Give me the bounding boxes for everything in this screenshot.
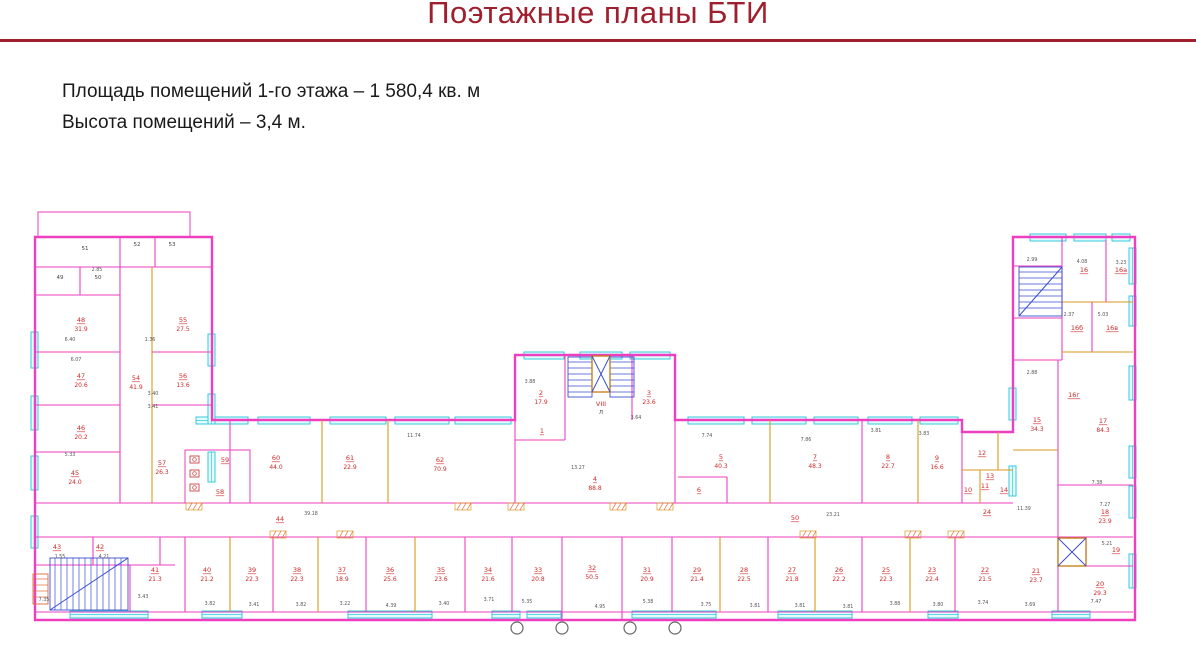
wc-fixture [190, 456, 199, 463]
room-area: 88.8 [588, 485, 602, 492]
room-number: 39 [248, 566, 256, 574]
dimension-label: 3.71 [484, 597, 495, 603]
room-number: 57 [158, 459, 166, 467]
room-number: 35 [437, 566, 445, 574]
wc-fixture [190, 484, 199, 491]
room-area: 13.6 [176, 382, 190, 389]
room-area: 84.3 [1096, 427, 1110, 434]
room-number: 44 [276, 515, 284, 523]
dimension-label: 4.95 [595, 604, 606, 610]
room-number: 4 [593, 475, 597, 483]
room-area: 26.3 [155, 469, 169, 476]
room-area: 25.6 [383, 576, 397, 583]
room-number: 32 [588, 564, 596, 572]
room-area: 22.2 [832, 576, 846, 583]
room-area: 20.6 [74, 382, 88, 389]
room-area: 21.5 [978, 576, 992, 583]
room-area: 29.3 [1093, 590, 1107, 597]
room-area: 27.5 [176, 326, 190, 333]
room-number: 16а [1115, 266, 1127, 274]
room-number: 58 [216, 488, 224, 496]
room-labels-layer: 4831.95527.54720.65441.95613.64620.24524… [39, 242, 1128, 610]
dimension-label: 5.38 [643, 599, 654, 605]
room-number: 11 [981, 482, 989, 490]
room-area: 23.9 [1098, 518, 1112, 525]
room-number: 27 [788, 566, 796, 574]
room-number: 37 [338, 566, 346, 574]
plan-label: Л [599, 410, 603, 416]
room-number: 33 [534, 566, 542, 574]
dimension-label: 7.47 [1091, 599, 1102, 605]
room-area: 21.2 [200, 576, 214, 583]
dimension-label: 3.64 [631, 415, 642, 421]
plan-label: 51 [82, 246, 89, 252]
dimension-label: 3.81 [871, 428, 882, 434]
room-area: 18.9 [335, 576, 349, 583]
room-number: 1 [540, 427, 544, 435]
room-number: 9 [935, 454, 939, 462]
dimension-label: 5.33 [65, 452, 76, 458]
dimension-label: 1.55 [55, 554, 66, 560]
dimension-label: 3.83 [919, 431, 930, 437]
dimension-label: 39.18 [304, 511, 318, 517]
dimension-label: 7.35 [39, 597, 50, 603]
room-number: 42 [96, 543, 104, 551]
room-number: 5 [719, 453, 723, 461]
plan-label: 52 [134, 242, 141, 248]
room-number: 62 [436, 456, 444, 464]
dimension-label: 3.80 [933, 602, 944, 608]
porch-column [624, 622, 636, 634]
staircase [610, 357, 634, 397]
title-rule [0, 39, 1196, 42]
room-number: 22 [981, 566, 989, 574]
room-number: 34 [484, 566, 492, 574]
room-number: 40 [203, 566, 211, 574]
dimension-label: 11.74 [407, 433, 421, 439]
room-number: 36 [386, 566, 394, 574]
room-number: 50 [791, 514, 799, 522]
plan-label: 49 [57, 275, 64, 281]
room-number: 16 [1080, 266, 1088, 274]
wc-fixture [190, 470, 199, 477]
dimension-label: 5.35 [522, 599, 533, 605]
room-number: 13 [986, 472, 994, 480]
dimension-label: 3.82 [205, 601, 216, 607]
room-area: 21.8 [785, 576, 799, 583]
room-area: 20.8 [531, 576, 545, 583]
dimension-label: 7.74 [702, 433, 713, 439]
dimension-label: 5.21 [1102, 541, 1113, 547]
page-title: Поэтажные планы БТИ [0, 0, 1196, 31]
room-number: 20 [1096, 580, 1104, 588]
dimension-label: 3.41 [249, 602, 260, 608]
room-number: 16б [1071, 324, 1083, 332]
porch-column [511, 622, 523, 634]
room-area: 16.6 [930, 464, 944, 471]
dimension-label: 5.03 [1098, 312, 1109, 318]
room-area: 31.9 [74, 326, 88, 333]
room-number: 59 [221, 456, 229, 464]
room-area: 34.3 [1030, 426, 1044, 433]
room-area: 48.3 [808, 463, 822, 470]
room-number: 47 [77, 372, 85, 380]
dimension-label: 3.75 [701, 602, 712, 608]
dimension-label: 2.88 [1027, 370, 1038, 376]
room-number: 14 [1000, 486, 1008, 494]
room-area: 22.3 [245, 576, 259, 583]
room-area: 22.7 [881, 463, 895, 470]
dimension-label: 3.40 [148, 391, 159, 397]
room-area: 22.4 [925, 576, 939, 583]
room-number: 45 [71, 469, 79, 477]
room-number: 18 [1101, 508, 1109, 516]
room-number: 17 [1099, 417, 1107, 425]
dimension-label: 3.88 [525, 379, 536, 385]
info-line-height: Высота помещений – 3,4 м. [62, 107, 480, 138]
room-number: 15 [1033, 416, 1041, 424]
room-area: 22.3 [879, 576, 893, 583]
room-number: 43 [53, 543, 61, 551]
room-area: 44.0 [269, 464, 283, 471]
room-area: 23.6 [434, 576, 448, 583]
room-number: 48 [77, 316, 85, 324]
outer-wall [35, 237, 1135, 620]
room-number: 54 [132, 374, 140, 382]
room-number: 23 [928, 566, 936, 574]
dimension-label: 7.38 [1092, 480, 1103, 486]
plan-label: 50 [95, 275, 102, 281]
room-area: 17.9 [534, 399, 548, 406]
room-number: 60 [272, 454, 280, 462]
parapet [38, 212, 190, 237]
room-number: 28 [740, 566, 748, 574]
room-number: 55 [179, 316, 187, 324]
porch-column [669, 622, 681, 634]
dimension-label: 7.27 [1100, 502, 1111, 508]
room-number: 41 [151, 566, 159, 574]
room-area: 41.9 [129, 384, 143, 391]
room-area: 24.0 [68, 479, 82, 486]
dimension-label: 3.23 [1116, 260, 1127, 266]
room-number: 12 [978, 449, 986, 457]
room-number: 2 [539, 389, 543, 397]
dimension-label: 3.69 [1025, 602, 1036, 608]
dimension-label: 2.85 [92, 267, 103, 273]
dimension-label: 4.21 [99, 554, 110, 560]
dimension-label: 13.27 [571, 465, 585, 471]
room-number: 6 [697, 486, 701, 494]
room-area: 20.2 [74, 434, 88, 441]
dimension-label: 2.37 [1064, 312, 1075, 318]
room-number: 10 [964, 486, 972, 494]
room-area: 70.9 [433, 466, 447, 473]
structure-layer [35, 212, 1135, 620]
dimension-label: 3.41 [148, 404, 159, 410]
room-number: 26 [835, 566, 843, 574]
dimension-label: 7.86 [801, 437, 812, 443]
dimension-label: 3.22 [340, 601, 351, 607]
plan-label: 53 [169, 242, 176, 248]
info-line-area: Площадь помещений 1-го этажа – 1 580,4 к… [62, 76, 480, 107]
room-number: 29 [693, 566, 701, 574]
dimension-label: 3.81 [843, 604, 854, 610]
room-number: 21 [1032, 567, 1040, 575]
room-area: 23.6 [642, 399, 656, 406]
room-number: 16г [1068, 391, 1080, 399]
dimension-label: 6.40 [65, 337, 76, 343]
room-area: 22.9 [343, 464, 357, 471]
room-number: 8 [886, 453, 890, 461]
dimension-label: 3.40 [439, 601, 450, 607]
room-area: 21.3 [148, 576, 162, 583]
windows-layer [31, 234, 1136, 618]
dimension-label: 1.36 [145, 337, 156, 343]
room-area: 21.6 [481, 576, 495, 583]
room-area: 40.3 [714, 463, 728, 470]
info-block: Площадь помещений 1-го этажа – 1 580,4 к… [62, 76, 480, 138]
room-area: 20.9 [640, 576, 654, 583]
dimension-label: 3.81 [795, 603, 806, 609]
room-number: 31 [643, 566, 651, 574]
dimension-label: 3.82 [296, 602, 307, 608]
porch-column [556, 622, 568, 634]
room-number: 56 [179, 372, 187, 380]
dimension-label: 3.43 [138, 594, 149, 600]
dimension-label: 4.08 [1077, 259, 1088, 265]
dimension-label: 6.07 [71, 357, 82, 363]
room-number: 7 [813, 453, 817, 461]
dimension-label: 3.74 [978, 600, 989, 606]
room-number: 19 [1112, 546, 1120, 554]
dimension-label: 11.39 [1017, 506, 1031, 512]
room-number: VIII [596, 400, 606, 408]
room-number: 3 [647, 389, 651, 397]
dimension-label: 3.81 [750, 603, 761, 609]
room-area: 22.5 [737, 576, 751, 583]
room-area: 21.4 [690, 576, 704, 583]
dimension-label: 4.39 [386, 603, 397, 609]
slide: Поэтажные планы БТИ Площадь помещений 1-… [0, 0, 1196, 672]
room-number: 61 [346, 454, 354, 462]
room-number: 16в [1106, 324, 1118, 332]
room-number: 24 [983, 508, 991, 516]
room-area: 50.5 [585, 574, 599, 581]
dimension-label: 3.88 [890, 601, 901, 607]
dimension-label: 23.21 [826, 512, 840, 518]
room-number: 25 [882, 566, 890, 574]
room-area: 23.7 [1029, 577, 1043, 584]
staircase [568, 357, 592, 397]
room-number: 38 [293, 566, 301, 574]
dimension-label: 2.99 [1027, 257, 1038, 263]
room-number: 46 [77, 424, 85, 432]
room-area: 22.3 [290, 576, 304, 583]
